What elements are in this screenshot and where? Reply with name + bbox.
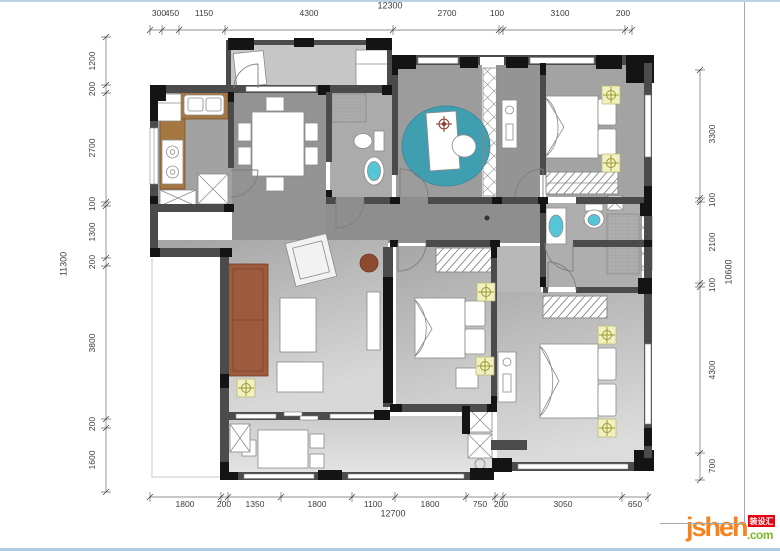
drawing-sheet: 300 450 1150 4300 2700 100 3100 200 1230… <box>0 0 780 551</box>
dim-right-seg-1: 100 <box>708 193 717 207</box>
dim-bottom-seg-4: 1100 <box>364 500 382 509</box>
dim-top-seg-5: 100 <box>490 9 504 18</box>
watermark-domain: .com <box>747 528 773 542</box>
dim-bottom-seg-2: 1350 <box>246 500 265 509</box>
dim-bottom-seg-8: 3050 <box>554 500 573 509</box>
hall-cabinet <box>483 68 498 196</box>
dim-left-seg-5: 200 <box>88 255 97 269</box>
sheet-border-horizontal <box>660 523 745 524</box>
dim-bottom-seg-1: 200 <box>217 500 231 509</box>
dim-bottom-seg-5: 1800 <box>421 500 440 509</box>
bedroom-2 <box>546 96 618 194</box>
sheet-edge-top <box>0 0 780 2</box>
floor-plan <box>0 0 780 551</box>
dim-left-seg-3: 100 <box>88 197 97 211</box>
dim-left-seg-4: 1300 <box>88 223 97 242</box>
dim-right-seg-5: 700 <box>708 459 717 473</box>
dim-right-total: 10600 <box>725 259 734 284</box>
terrace-outline <box>152 258 220 477</box>
dim-left-total: 11300 <box>60 252 69 276</box>
dim-top-seg-6: 3100 <box>551 9 570 18</box>
dim-left-seg-1: 200 <box>88 82 97 96</box>
dim-top-seg-3: 4300 <box>300 9 319 18</box>
dim-left-seg-0: 1200 <box>88 52 97 71</box>
dim-bottom-seg-0: 1800 <box>176 500 195 509</box>
dim-left-seg-2: 2700 <box>88 139 97 158</box>
dim-left-seg-8: 1600 <box>88 451 97 470</box>
dim-bottom-seg-6: 750 <box>473 500 487 509</box>
dim-left-seg-7: 200 <box>88 417 97 431</box>
dim-top-total: 12300 <box>377 2 402 11</box>
dim-top-seg-1: 450 <box>165 9 179 18</box>
dim-right-seg-2: 2100 <box>708 233 717 252</box>
dim-bottom-seg-9: 650 <box>628 500 642 509</box>
title-block: 平面布置图 PLAN SCALE1:50 <box>0 508 780 548</box>
dim-top-seg-2: 1150 <box>195 9 213 18</box>
dim-top-seg-7: 200 <box>616 9 630 18</box>
dim-bottom-seg-3: 1800 <box>308 500 327 509</box>
study-room <box>402 106 490 186</box>
dim-right-seg-3: 100 <box>708 278 717 292</box>
dim-top-seg-4: 2700 <box>438 9 457 18</box>
watermark-name: jsheh <box>686 514 747 541</box>
watermark-logo[interactable]: jsheh 装设汇 .com <box>686 512 778 548</box>
entry-console <box>502 100 517 148</box>
dim-bottom-seg-7: 200 <box>494 500 508 509</box>
sheet-border-vertical <box>744 2 745 523</box>
dim-right-seg-0: 3300 <box>708 125 717 144</box>
dim-left-seg-6: 3800 <box>88 334 97 353</box>
corridor-dot <box>485 216 490 221</box>
watermark-badge: 装设汇 <box>748 515 775 527</box>
dim-right-seg-4: 4300 <box>708 361 717 380</box>
